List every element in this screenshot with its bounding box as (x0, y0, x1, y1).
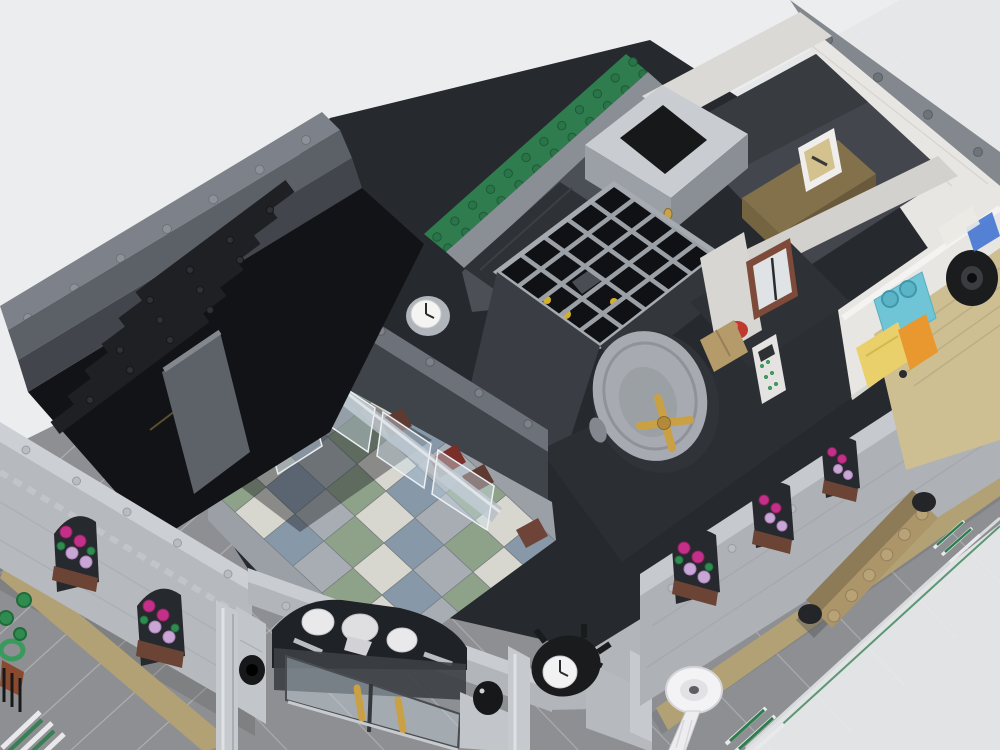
lego-bank-render (0, 0, 1000, 750)
vault-handle-hub (658, 417, 671, 430)
column-right (508, 646, 530, 750)
bench-arm-right (912, 492, 936, 512)
column-left (216, 600, 238, 750)
plant-tube-3 (14, 628, 26, 640)
lantern-right-glint (480, 689, 485, 694)
door-handle-right (398, 700, 403, 730)
lantern-right (473, 681, 503, 715)
lamppost-finial (689, 686, 699, 694)
plant-tube-1 (17, 593, 31, 607)
scene-svg (0, 0, 1000, 750)
washer-tube-2 (900, 281, 916, 297)
eagle-fan-right (387, 628, 417, 652)
door-handle-left (357, 688, 362, 718)
washer-tube-1 (882, 291, 898, 307)
plant-tube-2 (0, 611, 13, 625)
wall-tire-hole (967, 273, 977, 283)
bench-arm-left (798, 604, 822, 624)
eagle-fan-left (302, 609, 334, 635)
shop-black-detail (899, 370, 907, 378)
lantern-left-core (246, 664, 258, 676)
eagle-fan-center (342, 614, 378, 642)
